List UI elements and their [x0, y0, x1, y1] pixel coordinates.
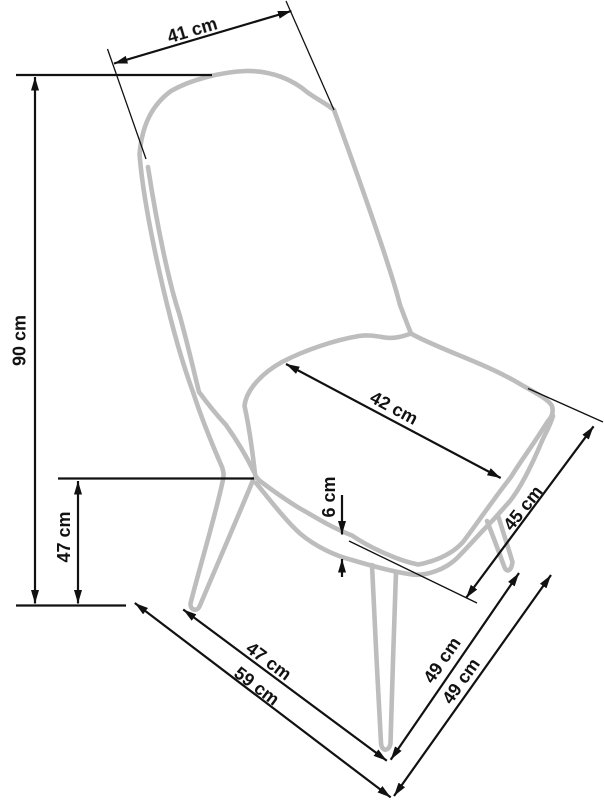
svg-text:90 cm: 90 cm	[10, 315, 30, 366]
svg-text:47 cm: 47 cm	[54, 511, 74, 562]
svg-text:41 cm: 41 cm	[165, 13, 220, 47]
svg-text:6 cm: 6 cm	[319, 476, 339, 517]
